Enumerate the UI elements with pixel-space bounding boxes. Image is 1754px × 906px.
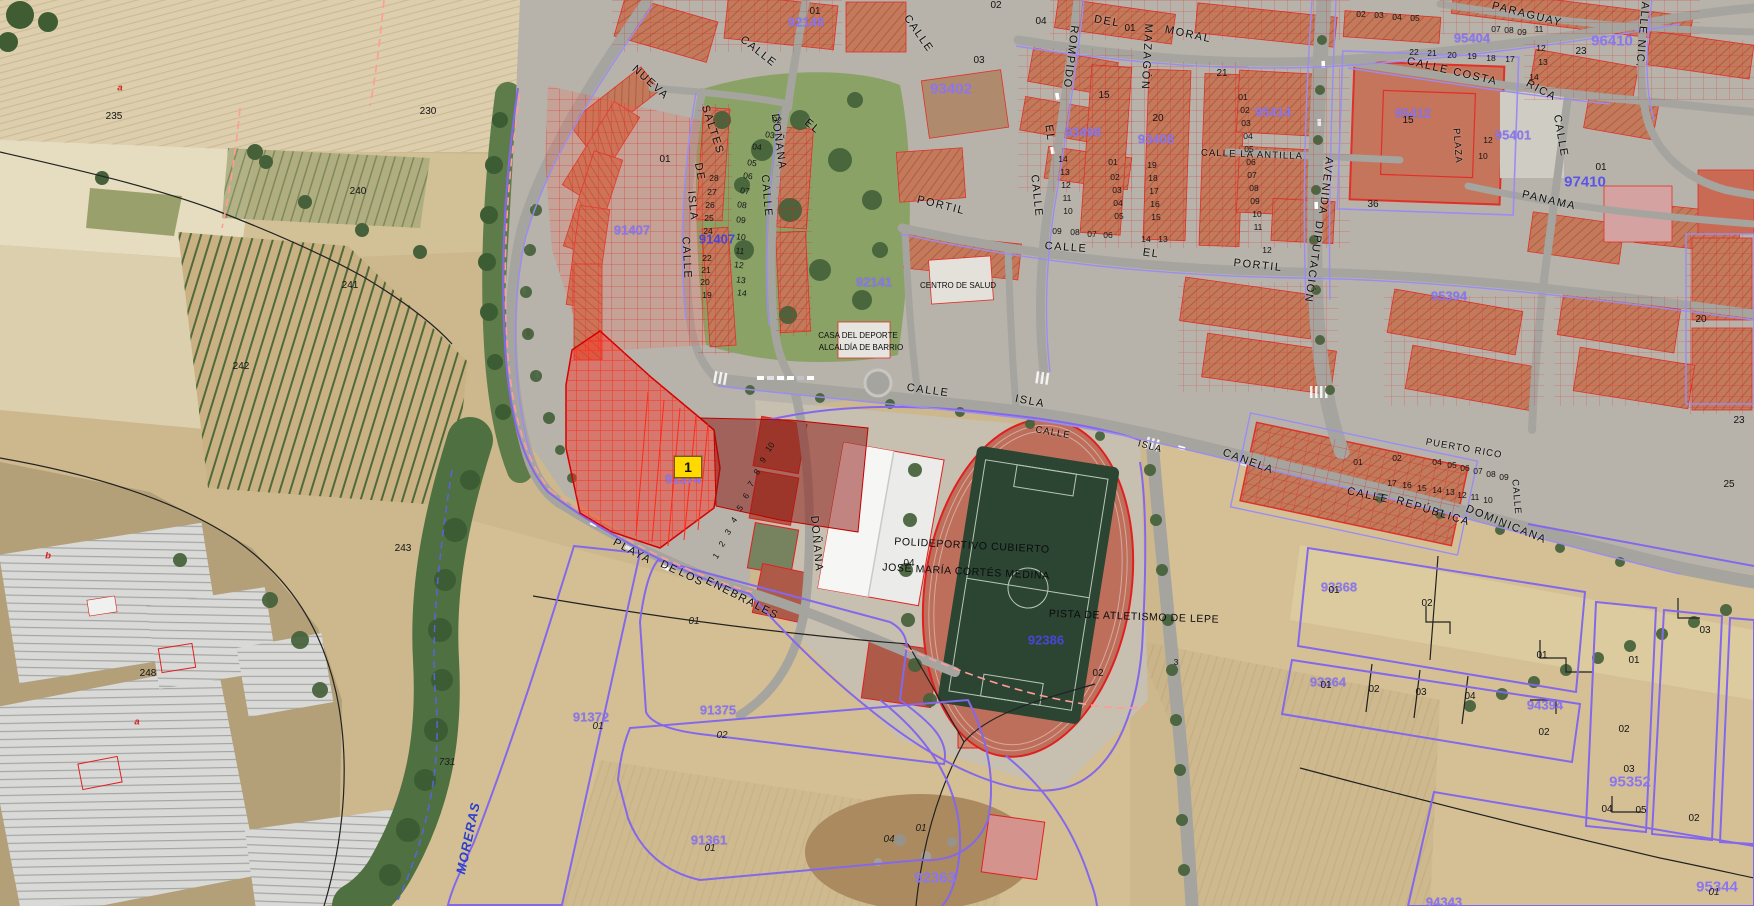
selected-parcel-marker: 1 bbox=[674, 456, 702, 478]
cadastral-map-viewport[interactable]: 1 CALLENUEVASALTESDEISLACALLEDOÑANACALLE… bbox=[0, 0, 1754, 906]
map-canvas[interactable] bbox=[0, 0, 1754, 906]
roundabout bbox=[865, 370, 891, 396]
